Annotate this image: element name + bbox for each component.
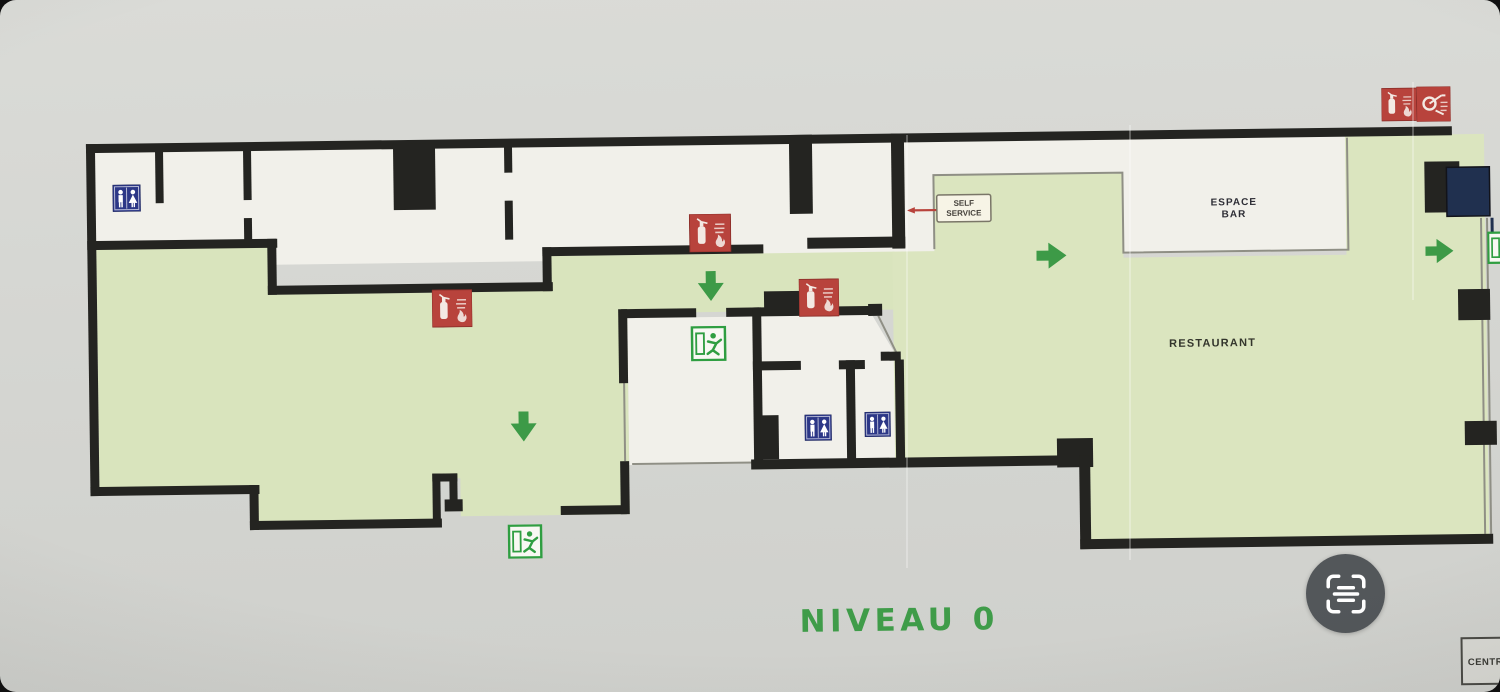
espace-bar-line2: BAR xyxy=(1222,209,1247,220)
corner-title-text: CENTRE xyxy=(1468,657,1500,669)
fire-extinguisher-icon xyxy=(799,279,839,317)
wc-sign-icon xyxy=(112,184,140,211)
level-title: NIVEAU 0 xyxy=(799,601,999,640)
emergency-exit-icon xyxy=(692,327,725,360)
wc-sign-icon xyxy=(805,414,832,440)
emergency-exit-icon xyxy=(509,525,541,557)
emergency-exit-icon xyxy=(1488,232,1500,263)
wc-sign-icon xyxy=(865,412,891,437)
fire-extinguisher-icon xyxy=(1381,88,1416,121)
self-service-label-line1: SELF xyxy=(953,199,974,208)
self-service-label-line2: SERVICE xyxy=(946,208,982,217)
corner-title-box: CENTRE xyxy=(1462,637,1500,684)
restaurant-label: RESTAURANT xyxy=(1169,337,1256,350)
stair-block xyxy=(1446,167,1490,217)
floor-plan-drawing: SELF SERVICE ESPACE BAR RESTAURANT NIVEA… xyxy=(0,0,1500,692)
espace-bar-line1: ESPACE xyxy=(1211,197,1258,209)
fire-extinguisher-icon xyxy=(689,214,731,253)
floor-plan-photo: SELF SERVICE ESPACE BAR RESTAURANT NIVEA… xyxy=(0,0,1500,692)
live-text-scan-icon xyxy=(1323,571,1369,617)
fire-extinguisher-icon xyxy=(432,290,472,328)
fire-hose-icon xyxy=(1416,86,1450,121)
live-text-scan-button[interactable] xyxy=(1306,554,1385,633)
